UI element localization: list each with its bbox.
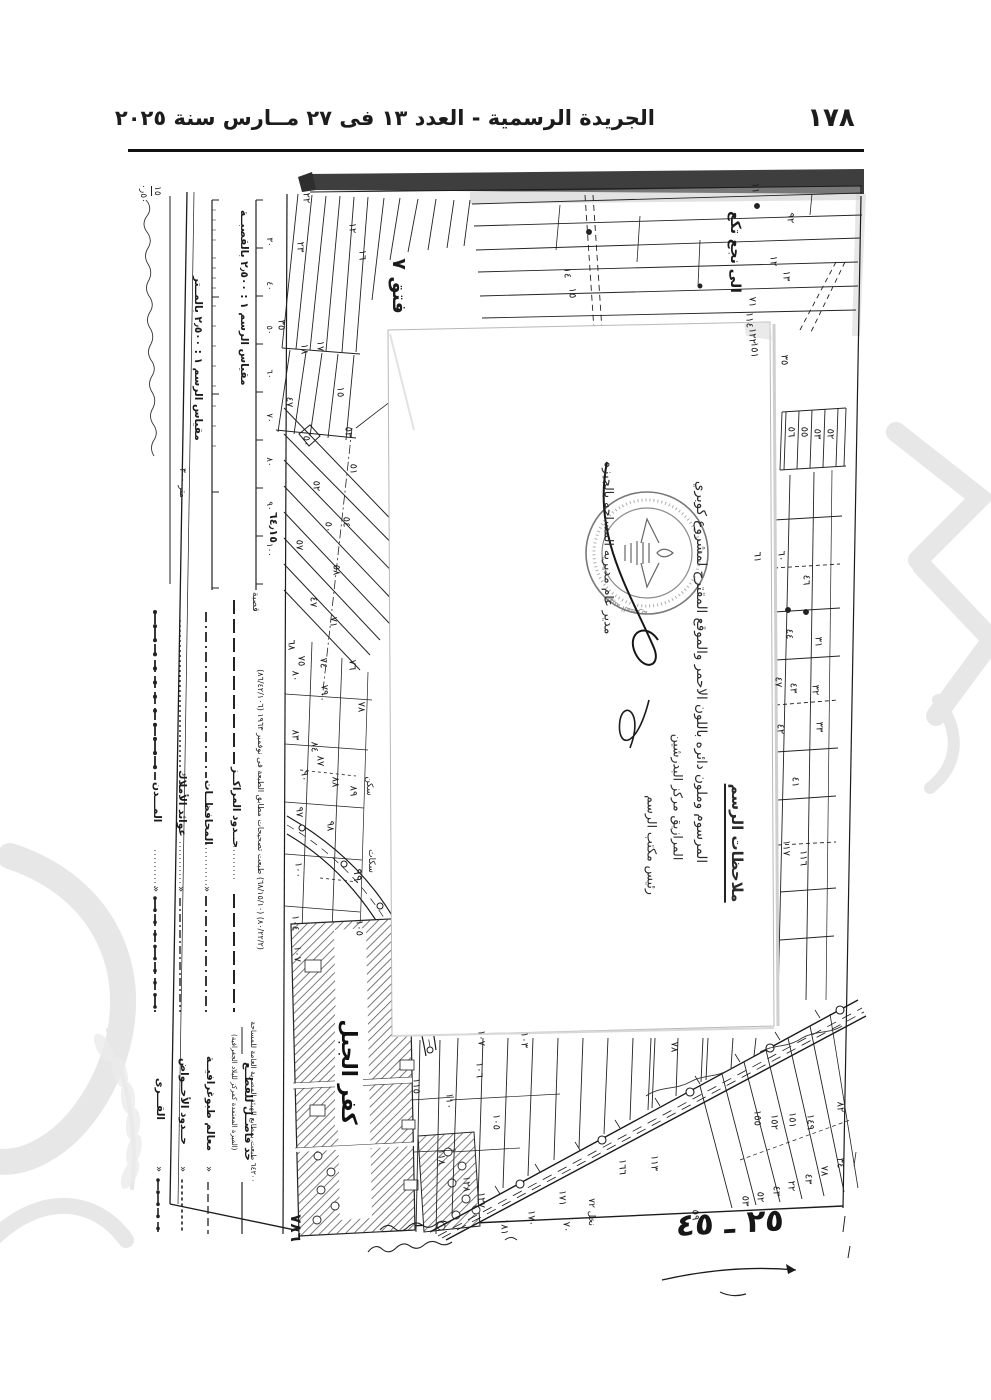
scale-tick: ٩٠ [264,501,274,510]
ditto-mark: « [177,1166,188,1172]
scale-title-meter: مقياس الرسم ١ : ٢٫٥٠٠ بالمــتر [192,276,204,441]
notes-sheet [388,322,778,1036]
coordinate-label: ٦٤٫١٥ [267,512,280,543]
legend-label: المحافظــات [202,780,214,845]
parcel-grid-right [780,408,846,470]
gazette-page: الجريدة الرسمية - العدد ١٣ فى ٢٧ مــارس … [0,0,991,1400]
corner-fraction-top: ١٥ [151,186,162,196]
legend-sublabel: (الميزة المعتمدة كمركز للبلاد الجغرافية) [230,1034,238,1150]
parcel-web [285,642,372,936]
field-strips-top-right [472,193,862,340]
ditto-mark: « [150,886,161,892]
legend-label: معالم طبوغرافيــة [204,1056,216,1151]
strips-right-column [774,470,842,1002]
scale-tick: ٧٠ [264,413,274,422]
ditto-mark: « [175,886,186,892]
legend-label: حــدود المراكــز [230,767,242,848]
scale-tick: ٥٠ [264,325,274,334]
legend-label: القـــرى [154,1078,166,1120]
main-road [430,1000,866,1240]
legend-label: حــدود الأحــواض [178,1058,190,1145]
scale-tick: ٦٠ [264,369,274,378]
arrow-annotation [662,1268,796,1280]
scale-tick: ٤٠ [264,281,274,290]
map-legend: مقياس الرسم ١ : ٢٫٥٠٠ بالقصبــة مقياس ال… [132,182,282,1237]
legend-label: المـــدن [151,782,163,822]
legend-label: حد فاصــل للقطــع [242,1062,254,1161]
scale-tick: ٣٠ [264,237,274,246]
scale-tick: ١٠٠ [264,543,274,557]
ditto-mark: « [201,886,212,892]
corner-fraction-bottom: ٥٠ر٠ [138,184,148,203]
legend-label: عوائد الأملاك [176,770,188,837]
scale-tick: ٨٠ [264,457,274,466]
meter-end-label: متر ٣٠٠ [177,468,187,498]
ditto-mark: « [203,1166,214,1172]
print-note-1: (٨٠/٢٢/٢) (٦٨/١٥/١٠) طبعت تصحيحات مطابق … [256,597,265,1022]
scale-title-qasaba: مقياس الرسم ١ : ٢٫٥٠٠ بالقصبــة [238,210,250,385]
ditto-mark: « [153,1166,164,1172]
